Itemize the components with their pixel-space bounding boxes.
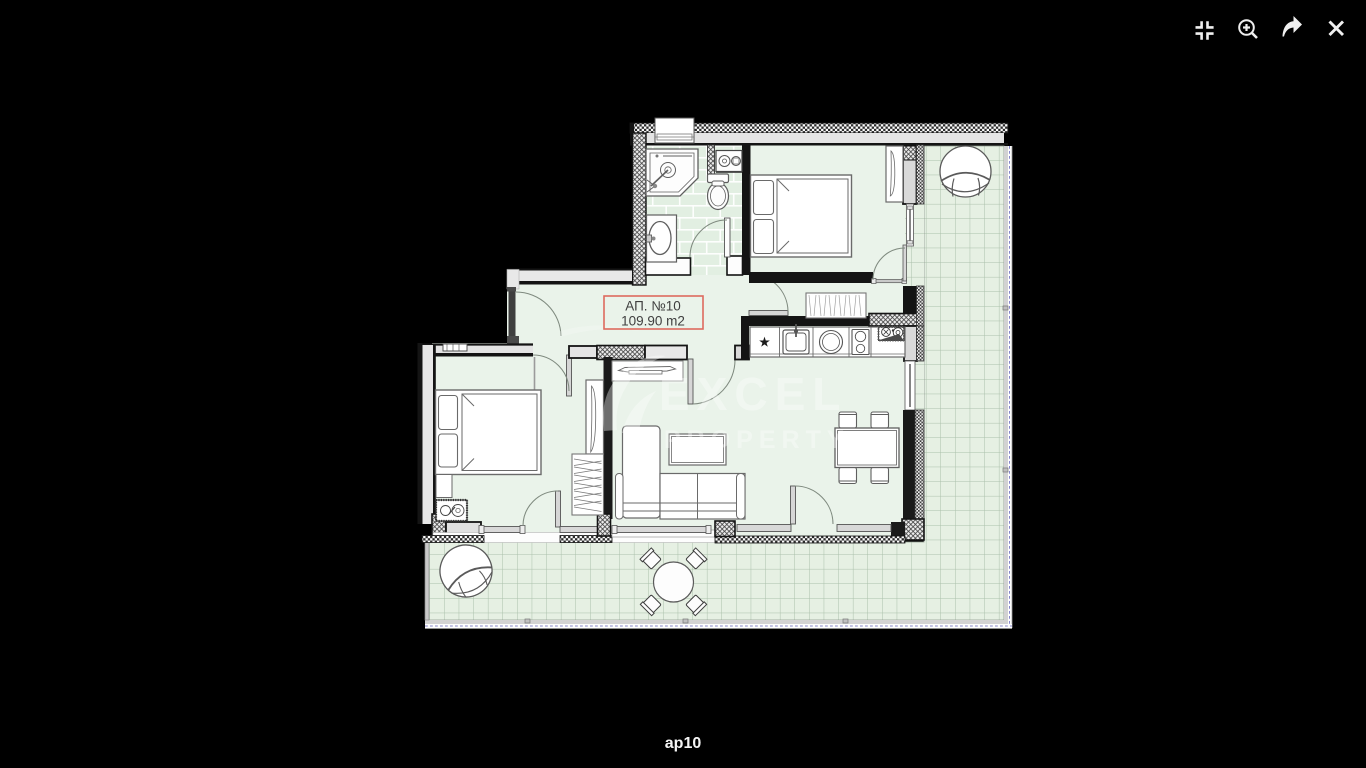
svg-text:109.90 m2: 109.90 m2 [621, 314, 685, 329]
svg-text:EXCEL: EXCEL [659, 368, 847, 420]
svg-text:АП. №10: АП. №10 [625, 299, 681, 314]
svg-text:PROPERTY: PROPERTY [664, 426, 850, 454]
svg-text:ap10: ap10 [665, 735, 702, 752]
